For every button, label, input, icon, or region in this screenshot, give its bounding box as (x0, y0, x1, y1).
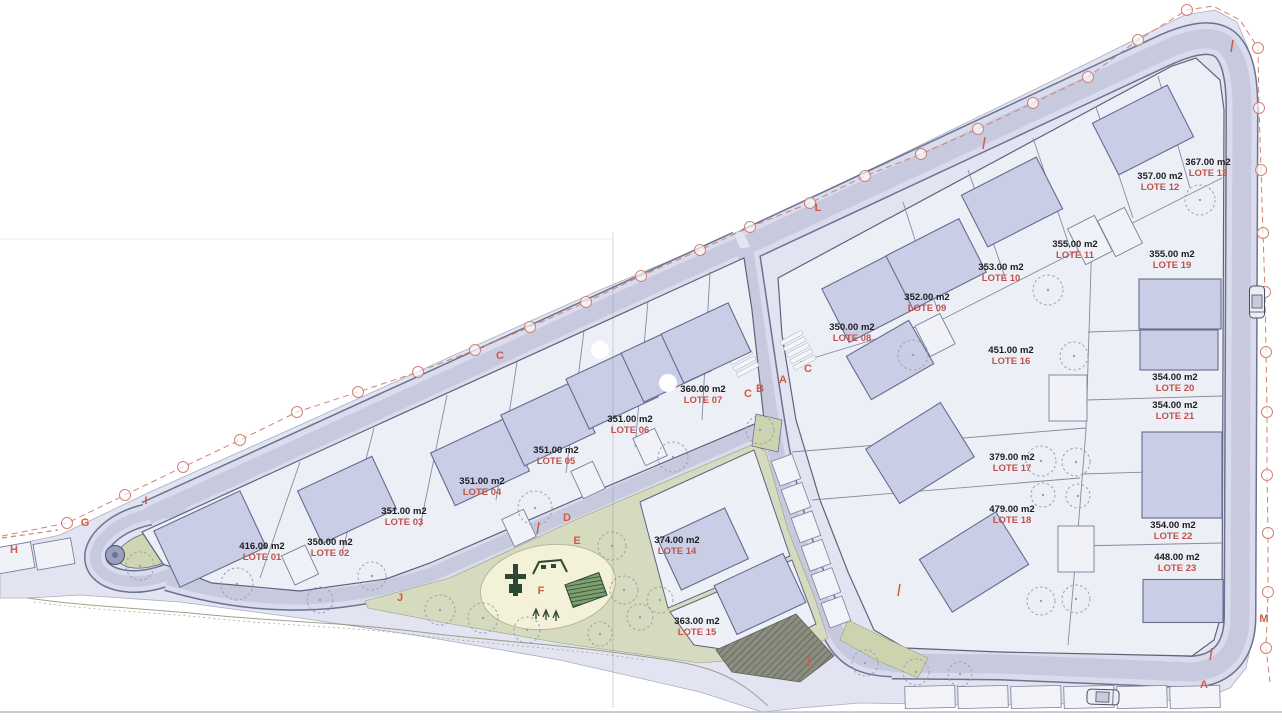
lot-name-label: LOTE 06 (611, 425, 650, 436)
lot-name-label: LOTE 16 (992, 356, 1031, 367)
survey-marker (1253, 43, 1264, 54)
tree-center (659, 599, 661, 601)
road-letter: F (538, 585, 545, 597)
tree-center (1040, 460, 1042, 462)
tree-center (959, 673, 961, 675)
survey-marker (695, 245, 706, 256)
survey-marker (1262, 407, 1273, 418)
parking-bay (1117, 685, 1168, 708)
tree-center (639, 616, 641, 618)
car-cabin (1096, 692, 1109, 702)
lot-name-label: LOTE 09 (908, 303, 947, 314)
tree-center (864, 662, 866, 664)
tree-center (439, 609, 441, 611)
building (1142, 432, 1222, 518)
tree-center (1073, 355, 1075, 357)
survey-marker (353, 387, 364, 398)
road-letter: I (144, 495, 147, 507)
road-letter: D (563, 512, 571, 524)
survey-marker (1263, 528, 1274, 539)
parking-bay (1170, 685, 1221, 708)
lot-area-label: 351.00 m2 (459, 476, 504, 487)
road-letter: B (756, 383, 764, 395)
road-letter: H (10, 544, 18, 556)
survey-marker (973, 124, 984, 135)
survey-marker (581, 297, 592, 308)
building (1140, 330, 1218, 370)
survey-marker (1028, 98, 1039, 109)
tree-center (1075, 598, 1077, 600)
lot-area-label: 353.00 m2 (978, 262, 1023, 273)
tree-center (526, 629, 528, 631)
survey-marker (1133, 35, 1144, 46)
lot-area-label: 451.00 m2 (988, 345, 1033, 356)
survey-marker (178, 462, 189, 473)
parking-bay (958, 685, 1009, 708)
white-dot-artifact (659, 374, 677, 392)
tree-center (1077, 495, 1079, 497)
survey-marker (292, 407, 303, 418)
tree-center (139, 565, 141, 567)
lot-area-label: 374.00 m2 (654, 535, 699, 546)
survey-marker (470, 345, 481, 356)
lot-area-label: 479.00 m2 (989, 504, 1034, 515)
tree-center (482, 617, 484, 619)
lot-name-label: LOTE 02 (311, 548, 350, 559)
lot-area-label: 351.00 m2 (381, 506, 426, 517)
survey-marker (413, 367, 424, 378)
tree-center (371, 575, 373, 577)
lot-name-label: LOTE 11 (1056, 250, 1095, 261)
tree-center (1042, 494, 1044, 496)
parking-bay (1011, 685, 1062, 708)
road-letter: J (397, 592, 403, 604)
road-letter: C (496, 350, 504, 362)
road-letter: L (815, 202, 822, 214)
lot-name-label: LOTE 01 (243, 552, 282, 563)
white-dot-artifact (591, 341, 609, 359)
lot-area-label: 416.00 m2 (239, 541, 284, 552)
building (1143, 580, 1223, 623)
lot-name-label: LOTE 14 (658, 546, 697, 557)
road-letter: M (1259, 613, 1268, 625)
lot-name-label: LOTE 08 (833, 333, 872, 344)
parking-bay (905, 685, 956, 708)
lot-name-label: LOTE 13 (1189, 168, 1228, 179)
annex-structure (1049, 375, 1087, 421)
survey-marker (120, 490, 131, 501)
survey-marker (1254, 103, 1265, 114)
lot-name-label: LOTE 20 (1156, 383, 1195, 394)
traffic-island (752, 414, 782, 452)
road-letter: C (744, 388, 752, 400)
survey-marker (745, 222, 756, 233)
survey-marker (235, 435, 246, 446)
lot-name-label: LOTE 22 (1154, 531, 1193, 542)
lot-area-label: 360.00 m2 (680, 384, 725, 395)
site-plan-drawing: 416.00 m2LOTE 01350.00 m2LOTE 02351.00 m… (0, 0, 1282, 720)
survey-marker (916, 149, 927, 160)
lot-name-label: LOTE 21 (1156, 411, 1195, 422)
survey-marker (860, 171, 871, 182)
survey-marker (525, 322, 536, 333)
lot-name-label: LOTE 12 (1141, 182, 1180, 193)
lot-name-label: LOTE 15 (678, 627, 717, 638)
lot-area-label: 350.00 m2 (307, 537, 352, 548)
road-letter: G (81, 517, 90, 529)
lot-area-label: 363.00 m2 (674, 616, 719, 627)
lot-name-label: LOTE 10 (982, 273, 1021, 284)
survey-marker (1263, 587, 1274, 598)
tree-center (912, 354, 914, 356)
lot-area-label: 354.00 m2 (1152, 400, 1197, 411)
road-letter: A (1200, 679, 1208, 691)
tree-center (672, 456, 674, 458)
survey-marker (1261, 643, 1272, 654)
tree-center (534, 507, 536, 509)
tree-center (915, 671, 917, 673)
lot-area-label: 357.00 m2 (1137, 171, 1182, 182)
boundary-dashes-left (2, 530, 58, 538)
lot-name-label: LOTE 19 (1153, 260, 1192, 271)
lot-name-label: LOTE 05 (537, 456, 576, 467)
lot-area-label: 367.00 m2 (1185, 157, 1230, 168)
lot-area-label: 355.00 m2 (1052, 239, 1097, 250)
car-cabin (1252, 295, 1262, 308)
tree-center (1199, 199, 1201, 201)
lot-area-label: 448.00 m2 (1154, 552, 1199, 563)
lot-name-label: LOTE 04 (463, 487, 502, 498)
lot-name-label: LOTE 07 (684, 395, 723, 406)
road-letter: E (573, 535, 580, 547)
survey-marker (1256, 165, 1267, 176)
survey-marker (1182, 5, 1193, 16)
fountain-center (112, 552, 118, 558)
lot-area-label: 379.00 m2 (989, 452, 1034, 463)
lot-name-label: LOTE 17 (993, 463, 1032, 474)
survey-marker (1261, 347, 1272, 358)
tree-center (1047, 289, 1049, 291)
tree-center (1075, 461, 1077, 463)
tree-center (1040, 600, 1042, 602)
survey-marker (636, 271, 647, 282)
tree-center (759, 429, 761, 431)
lot-name-label: LOTE 03 (385, 517, 424, 528)
lot-area-label: 354.00 m2 (1152, 372, 1197, 383)
car-icon (1087, 689, 1120, 705)
tree-center (599, 633, 601, 635)
survey-marker (1258, 228, 1269, 239)
survey-marker (62, 518, 73, 529)
tree-center (319, 599, 321, 601)
tree-center (236, 583, 238, 585)
site-plan-page: 416.00 m2LOTE 01350.00 m2LOTE 02351.00 m… (0, 0, 1282, 720)
building (1139, 279, 1221, 329)
car-windshield (1113, 690, 1114, 705)
lot-name-label: LOTE 18 (993, 515, 1032, 526)
road-letter: A (779, 374, 787, 386)
lot-area-label: 352.00 m2 (904, 292, 949, 303)
car-icon (1250, 286, 1265, 318)
lot-area-label: 351.00 m2 (533, 445, 578, 456)
tree-center (623, 589, 625, 591)
lot-area-label: 350.00 m2 (829, 322, 874, 333)
survey-marker (1083, 72, 1094, 83)
annex-structure (1058, 526, 1094, 572)
survey-marker (1262, 470, 1273, 481)
lot-name-label: LOTE 23 (1158, 563, 1197, 574)
road-letter: C (804, 363, 812, 375)
lot-area-label: 354.00 m2 (1150, 520, 1195, 531)
lot-area-label: 355.00 m2 (1149, 249, 1194, 260)
lot-area-label: 351.00 m2 (607, 414, 652, 425)
